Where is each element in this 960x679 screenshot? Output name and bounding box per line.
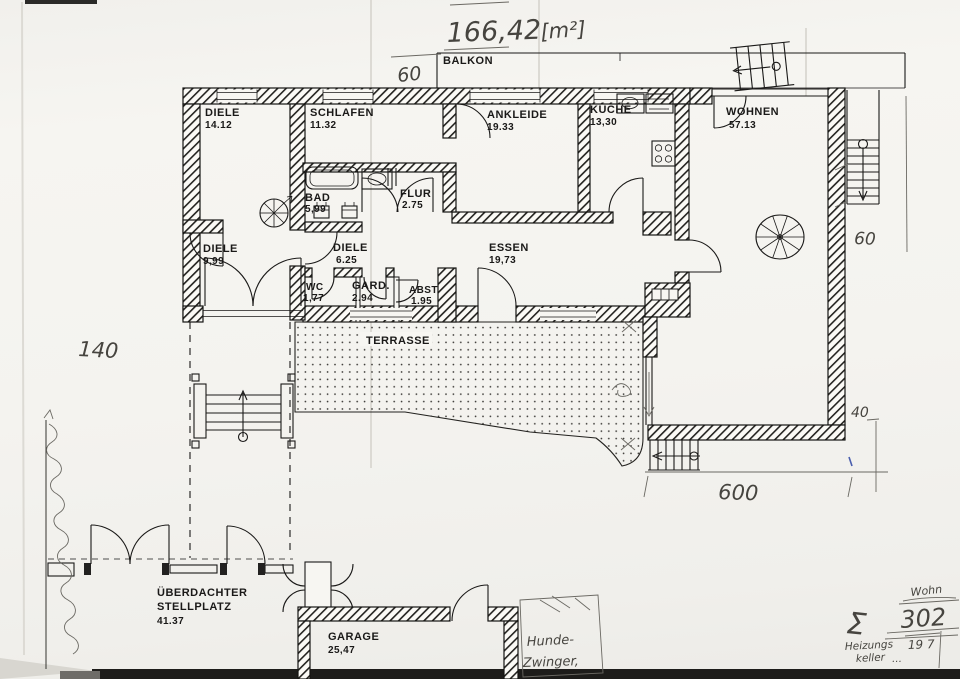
label-terrasse: TERRASSE xyxy=(366,335,430,347)
window xyxy=(323,90,373,103)
kueche-door xyxy=(609,178,643,212)
dim-right-lower: 40 xyxy=(851,405,869,421)
stove-icon xyxy=(652,141,675,166)
dim-right: 60 xyxy=(854,229,876,250)
essen-terrace-door xyxy=(478,268,516,306)
area-flur: 2.75 xyxy=(402,200,423,211)
sum-sigma: Σ xyxy=(845,606,868,643)
label-essen: ESSEN xyxy=(489,242,529,254)
scanned-floor-plan: BALKON DIELE 14.12 SCHLAFEN 11.32 ANKLEI… xyxy=(0,0,960,679)
area-diele-top: 14.12 xyxy=(205,120,232,131)
bathtub-icon xyxy=(306,167,358,189)
label-abst: ABST. xyxy=(409,285,440,296)
area-bad: 5,99 xyxy=(305,204,326,215)
window xyxy=(540,308,596,320)
balcony xyxy=(437,53,905,88)
area-wc: 1,77 xyxy=(303,293,324,304)
kennel-line2: Zwinger, xyxy=(522,654,579,671)
ankleide-door xyxy=(456,104,490,138)
terrace-area xyxy=(295,322,643,466)
area-diele-corridor: 6.25 xyxy=(336,255,357,266)
french-door-sill xyxy=(203,311,303,317)
total-area-value: 166,42 xyxy=(446,15,542,49)
stairs-terrace-lower xyxy=(648,440,700,470)
label-diele-top: DIELE xyxy=(205,107,240,119)
label-schlafen: SCHLAFEN xyxy=(310,107,374,119)
area-wohnen: 57.13 xyxy=(729,120,756,131)
sum-value: 302 xyxy=(899,603,947,634)
heating-line2: keller xyxy=(856,651,886,665)
window xyxy=(217,90,257,103)
area-diele-mid: 9,99 xyxy=(203,256,224,267)
terrace xyxy=(295,322,643,466)
bad-door xyxy=(362,178,398,212)
label-kueche: KÜCHE xyxy=(590,103,632,116)
heating-dots: … xyxy=(892,654,902,665)
label-ankleide: ANKLEIDE xyxy=(487,109,547,121)
label-garage: GARAGE xyxy=(328,631,379,643)
heating-line1: Heizungs xyxy=(845,638,894,653)
window xyxy=(470,90,540,103)
dim-top: 60 xyxy=(396,63,422,87)
window xyxy=(350,308,412,320)
total-area-unit: [m²] xyxy=(540,17,587,44)
wohn-label: Wohn xyxy=(910,583,943,599)
doors xyxy=(190,96,746,306)
stairs-balcony-angled xyxy=(730,42,794,91)
area-garage: 25,47 xyxy=(328,645,355,656)
area-stellplatz: 41.37 xyxy=(157,616,184,627)
stairs-east-exterior xyxy=(847,90,879,204)
dim-bottom: 600 xyxy=(718,480,759,505)
label-flur: FLUR xyxy=(400,188,431,200)
label-bad: BAD xyxy=(305,192,330,204)
toilet-icon xyxy=(342,202,357,218)
area-kueche: 13,30 xyxy=(590,117,617,128)
wohnen-door xyxy=(689,240,721,272)
area-schlafen: 11.32 xyxy=(310,120,337,131)
label-stellplatz-1: ÜBERDACHTER xyxy=(157,586,247,599)
area-essen: 19,73 xyxy=(489,255,516,266)
area-gard: 2.94 xyxy=(352,293,373,304)
label-wohnen: WOHNEN xyxy=(726,106,779,118)
fan-icon xyxy=(260,196,292,227)
window xyxy=(594,90,648,103)
garage-door xyxy=(452,585,488,621)
label-diele-mid: DIELE xyxy=(203,243,238,255)
heating-value: 19 7 xyxy=(908,637,936,652)
area-abst: 1.95 xyxy=(411,296,432,307)
carport-doors xyxy=(91,525,265,564)
label-diele-corridor: DIELE xyxy=(333,242,368,254)
spiral-staircase-icon xyxy=(756,215,804,259)
label-gard: GARD. xyxy=(352,280,390,292)
kennel-line1: Hunde- xyxy=(526,633,574,650)
label-stellplatz-2: STELLPLATZ xyxy=(157,601,231,613)
hedge xyxy=(44,410,78,669)
label-wc: WC xyxy=(306,282,323,293)
stairs-garden xyxy=(192,374,295,448)
area-ankleide: 19.33 xyxy=(487,122,514,133)
label-balkon: BALKON xyxy=(443,55,493,67)
dim-left: 140 xyxy=(78,337,119,363)
